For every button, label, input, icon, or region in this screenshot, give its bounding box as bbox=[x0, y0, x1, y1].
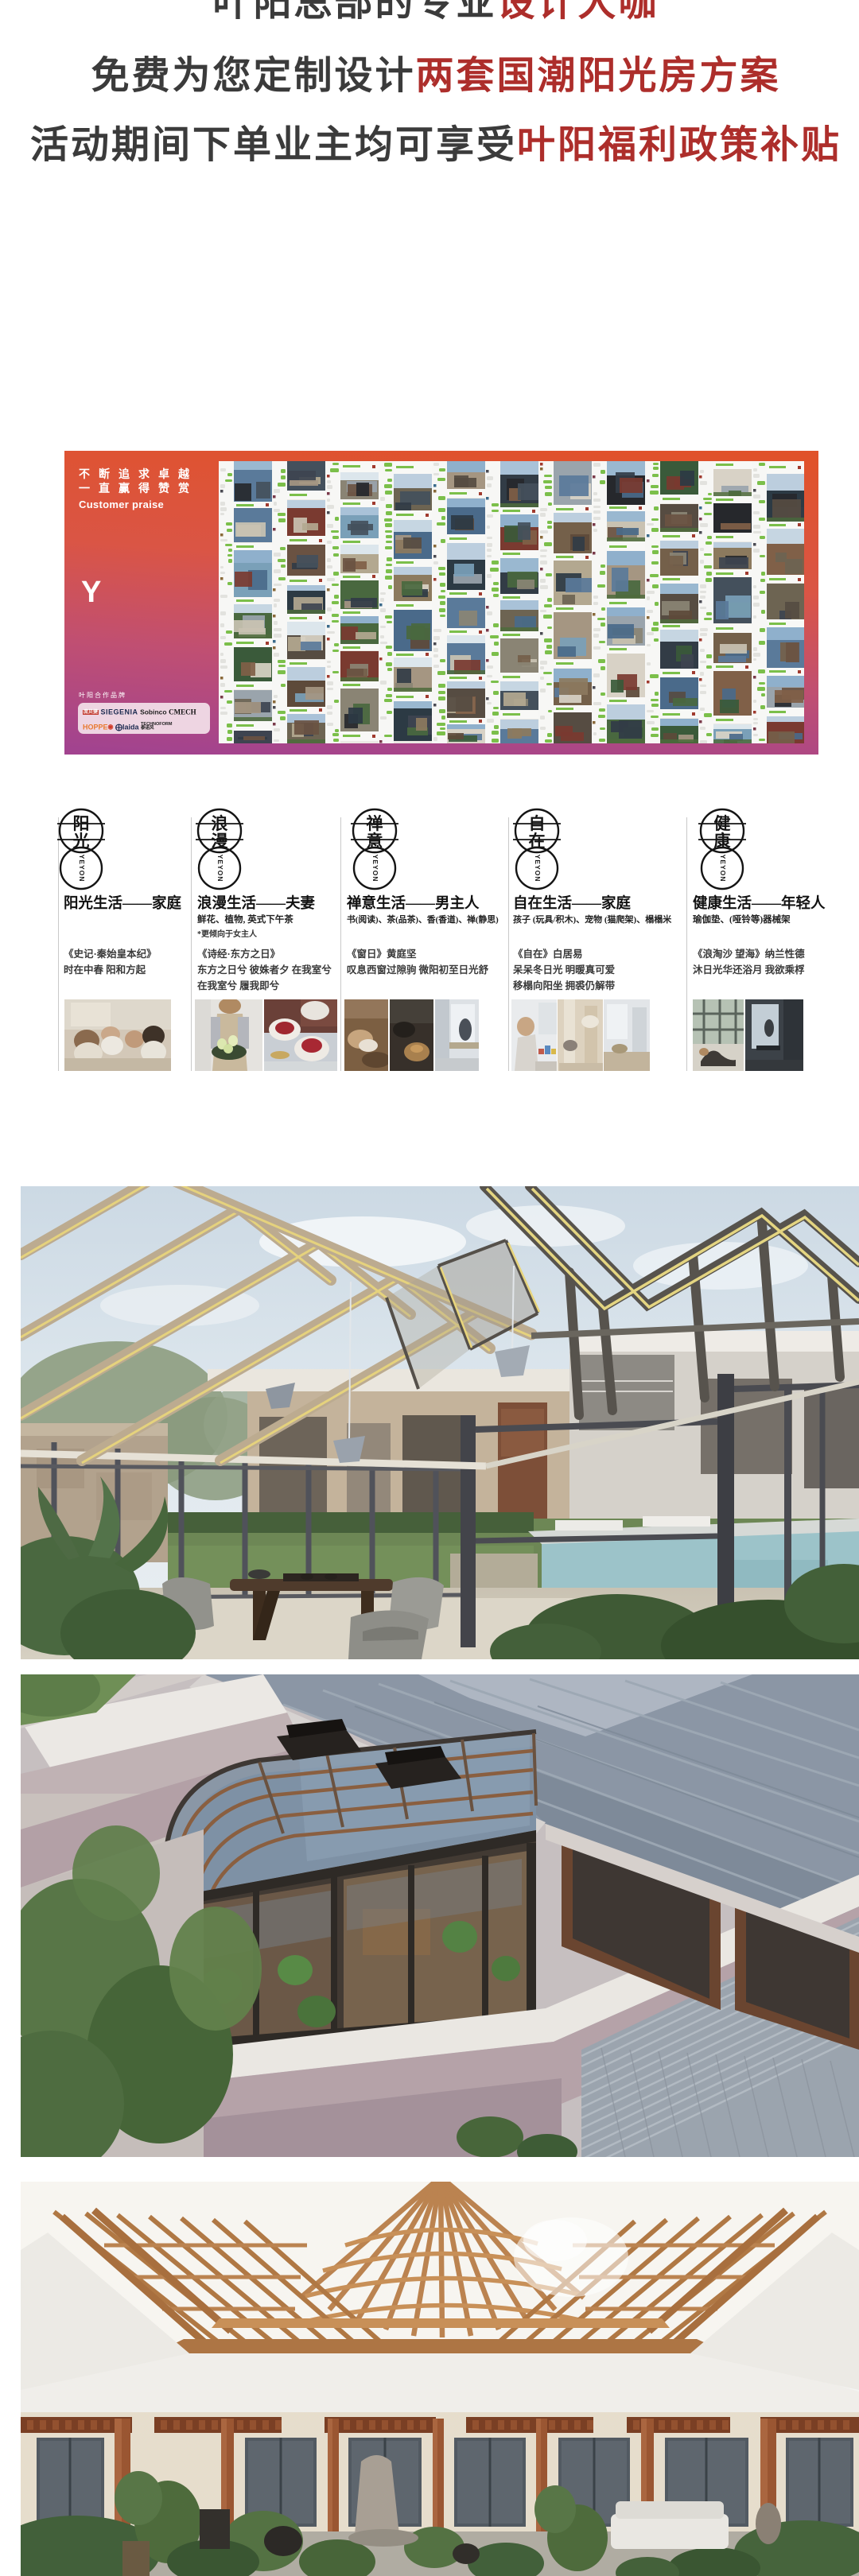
svg-text:YEYON: YEYON bbox=[216, 855, 224, 883]
svg-text:阳: 阳 bbox=[73, 814, 90, 833]
svg-text:YEYON: YEYON bbox=[719, 855, 727, 883]
svg-text:YEYON: YEYON bbox=[534, 855, 542, 883]
svg-text:浪: 浪 bbox=[212, 814, 228, 833]
svg-text:YEYON: YEYON bbox=[371, 855, 379, 883]
svg-text:健: 健 bbox=[714, 814, 731, 833]
svg-text:自: 自 bbox=[529, 814, 546, 833]
svg-text:禅: 禅 bbox=[366, 814, 383, 833]
svg-text:YEYON: YEYON bbox=[78, 855, 86, 883]
